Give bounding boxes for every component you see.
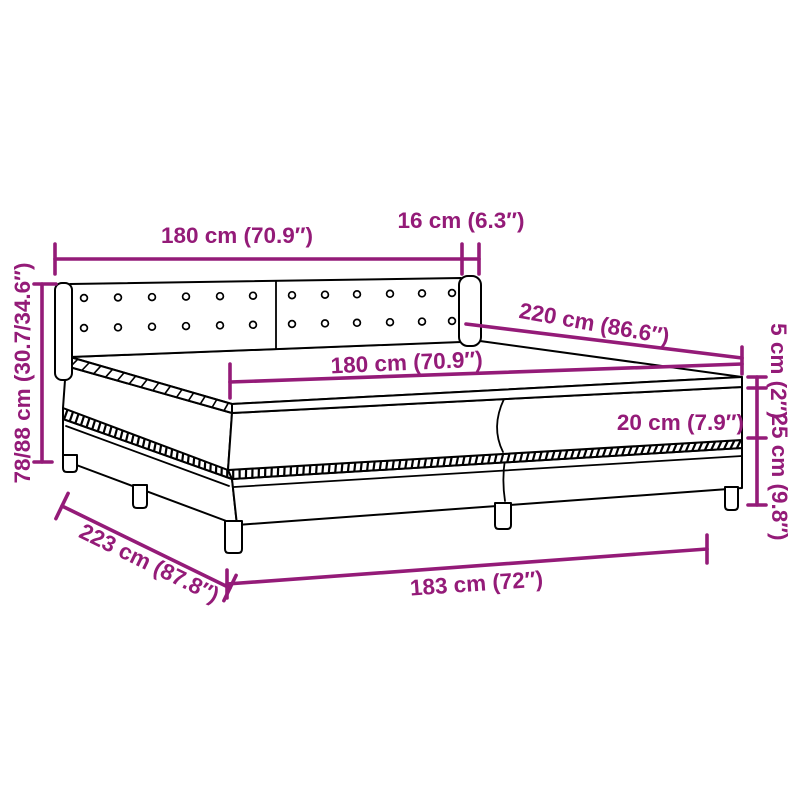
- label-base-width: 183 cm (72″): [409, 566, 544, 600]
- bed-leg: [725, 487, 738, 510]
- bed-leg: [133, 485, 147, 508]
- label-base-length: 223 cm (87.8″): [75, 519, 223, 608]
- label-mattress-height: 20 cm (7.9″): [617, 410, 744, 435]
- label-base-height: 25 cm (9.8″): [767, 413, 792, 540]
- bed-leg: [225, 521, 242, 553]
- label-headboard-wing-depth: 16 cm (6.3″): [397, 208, 524, 233]
- bed-dimension-diagram: 180 cm (70.9″) 16 cm (6.3″) 220 cm (86.6…: [0, 0, 800, 800]
- diagram-canvas: 180 cm (70.9″) 16 cm (6.3″) 220 cm (86.6…: [0, 0, 800, 800]
- bed-leg: [63, 455, 77, 472]
- dim-tick: [56, 493, 68, 518]
- bed-leg: [495, 503, 511, 529]
- label-topper-height: 5 cm (2″): [766, 323, 791, 419]
- label-headboard-height: 78/88 cm (30.7/34.6″): [10, 263, 35, 484]
- label-headboard-width: 180 cm (70.9″): [161, 223, 313, 248]
- headboard-panel: [70, 278, 461, 357]
- headboard-left-wing: [55, 283, 72, 380]
- headboard-right-wing: [459, 276, 481, 346]
